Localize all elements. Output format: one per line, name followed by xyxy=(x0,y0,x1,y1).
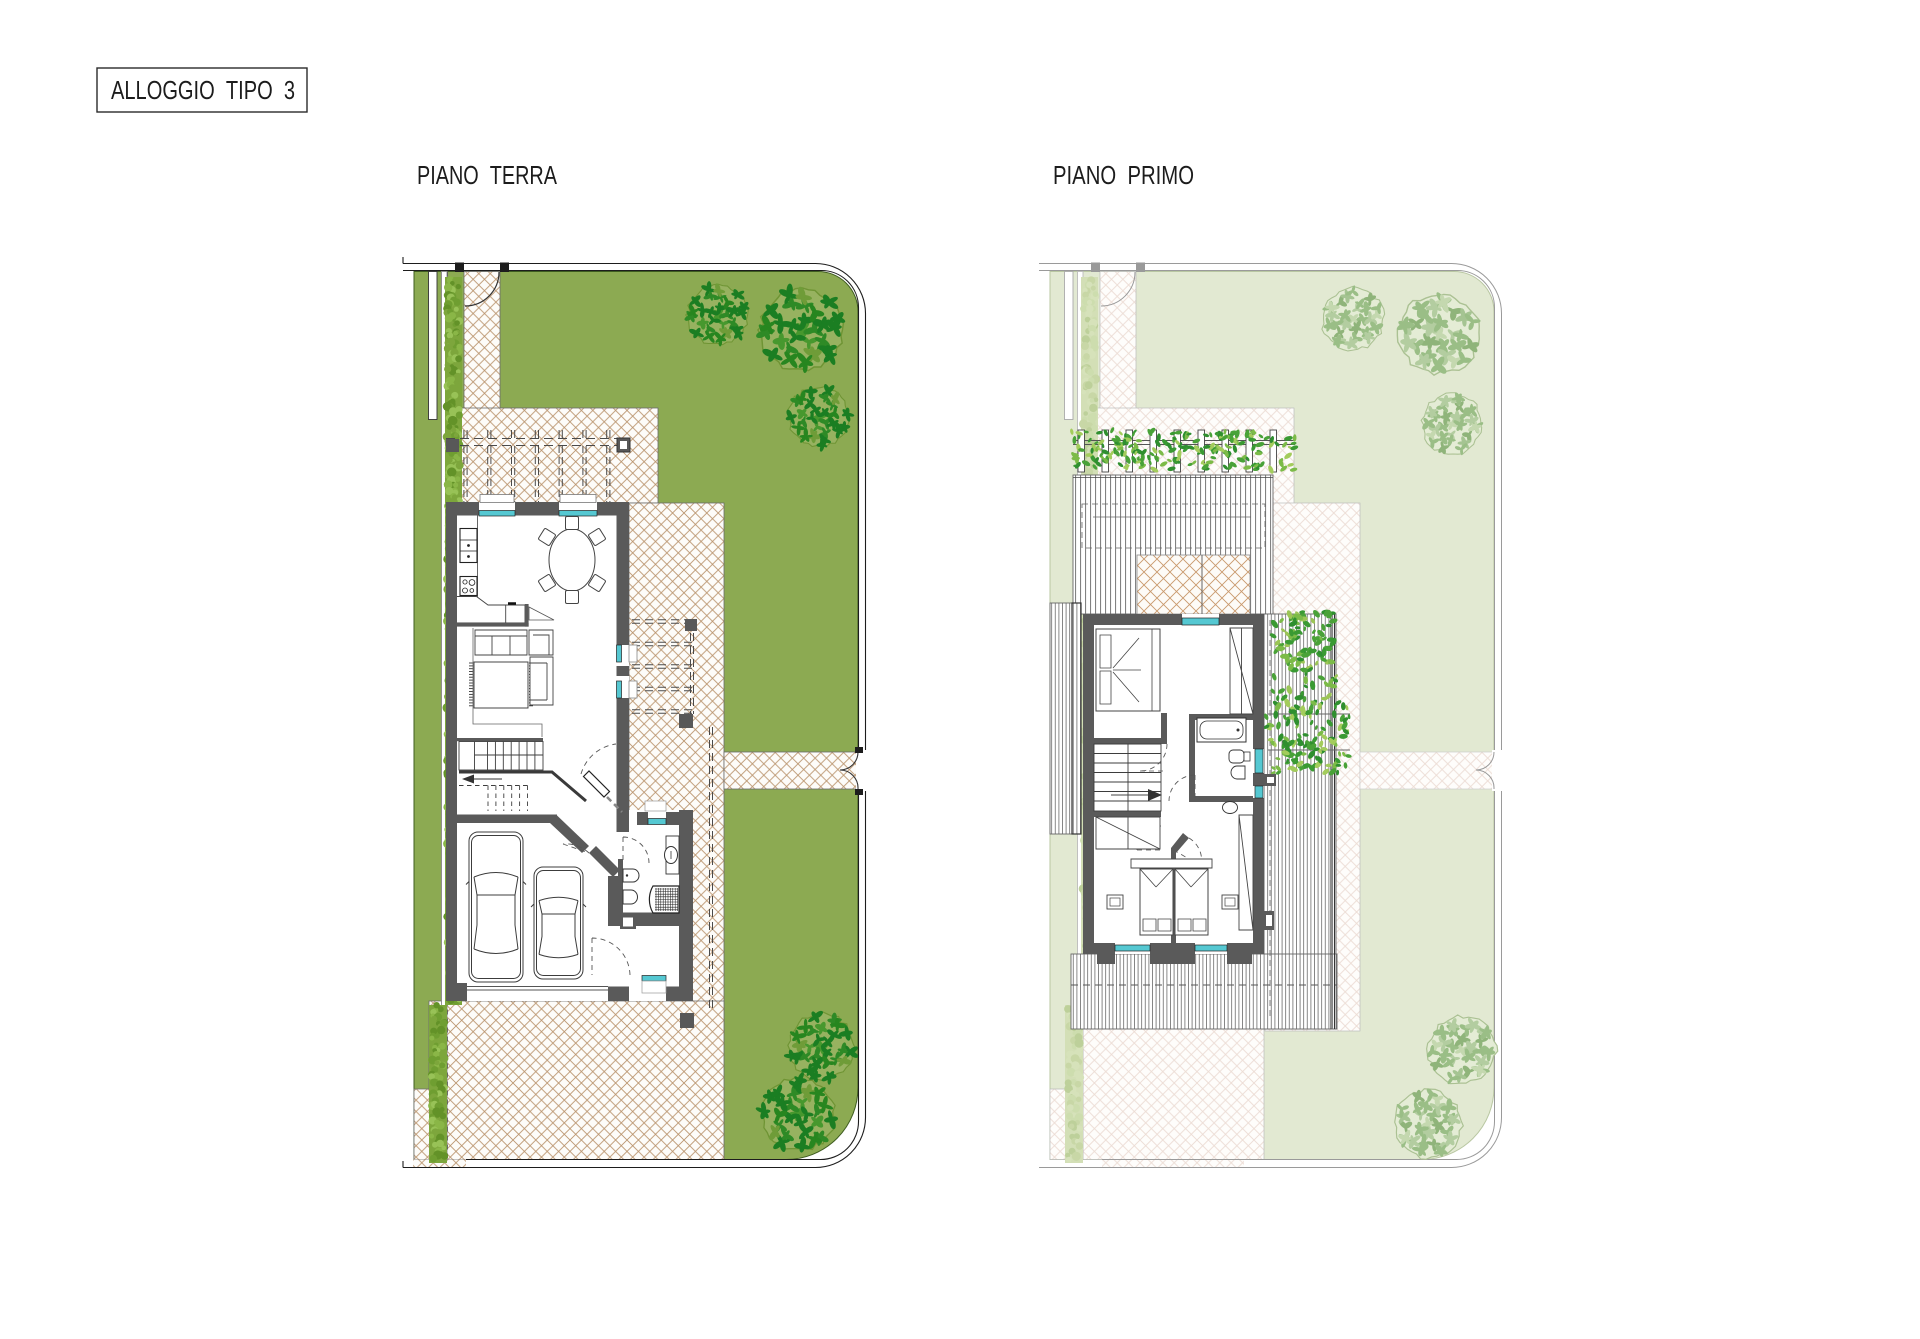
svg-text:PIANO TERRA: PIANO TERRA xyxy=(417,160,557,190)
svg-text:ALLOGGIO TIPO 3: ALLOGGIO TIPO 3 xyxy=(111,75,295,105)
svg-text:PIANO PRIMO: PIANO PRIMO xyxy=(1053,160,1194,190)
